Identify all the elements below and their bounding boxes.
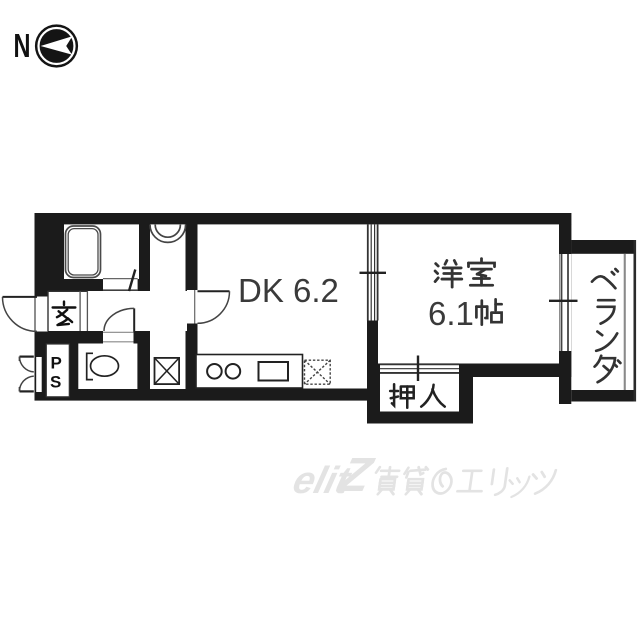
- svg-text:6.1: 6.1: [428, 295, 474, 332]
- svg-text:DK 6.2: DK 6.2: [238, 272, 339, 309]
- svg-text:S: S: [50, 373, 61, 392]
- svg-text:N: N: [14, 27, 31, 64]
- svg-text:P: P: [51, 354, 62, 373]
